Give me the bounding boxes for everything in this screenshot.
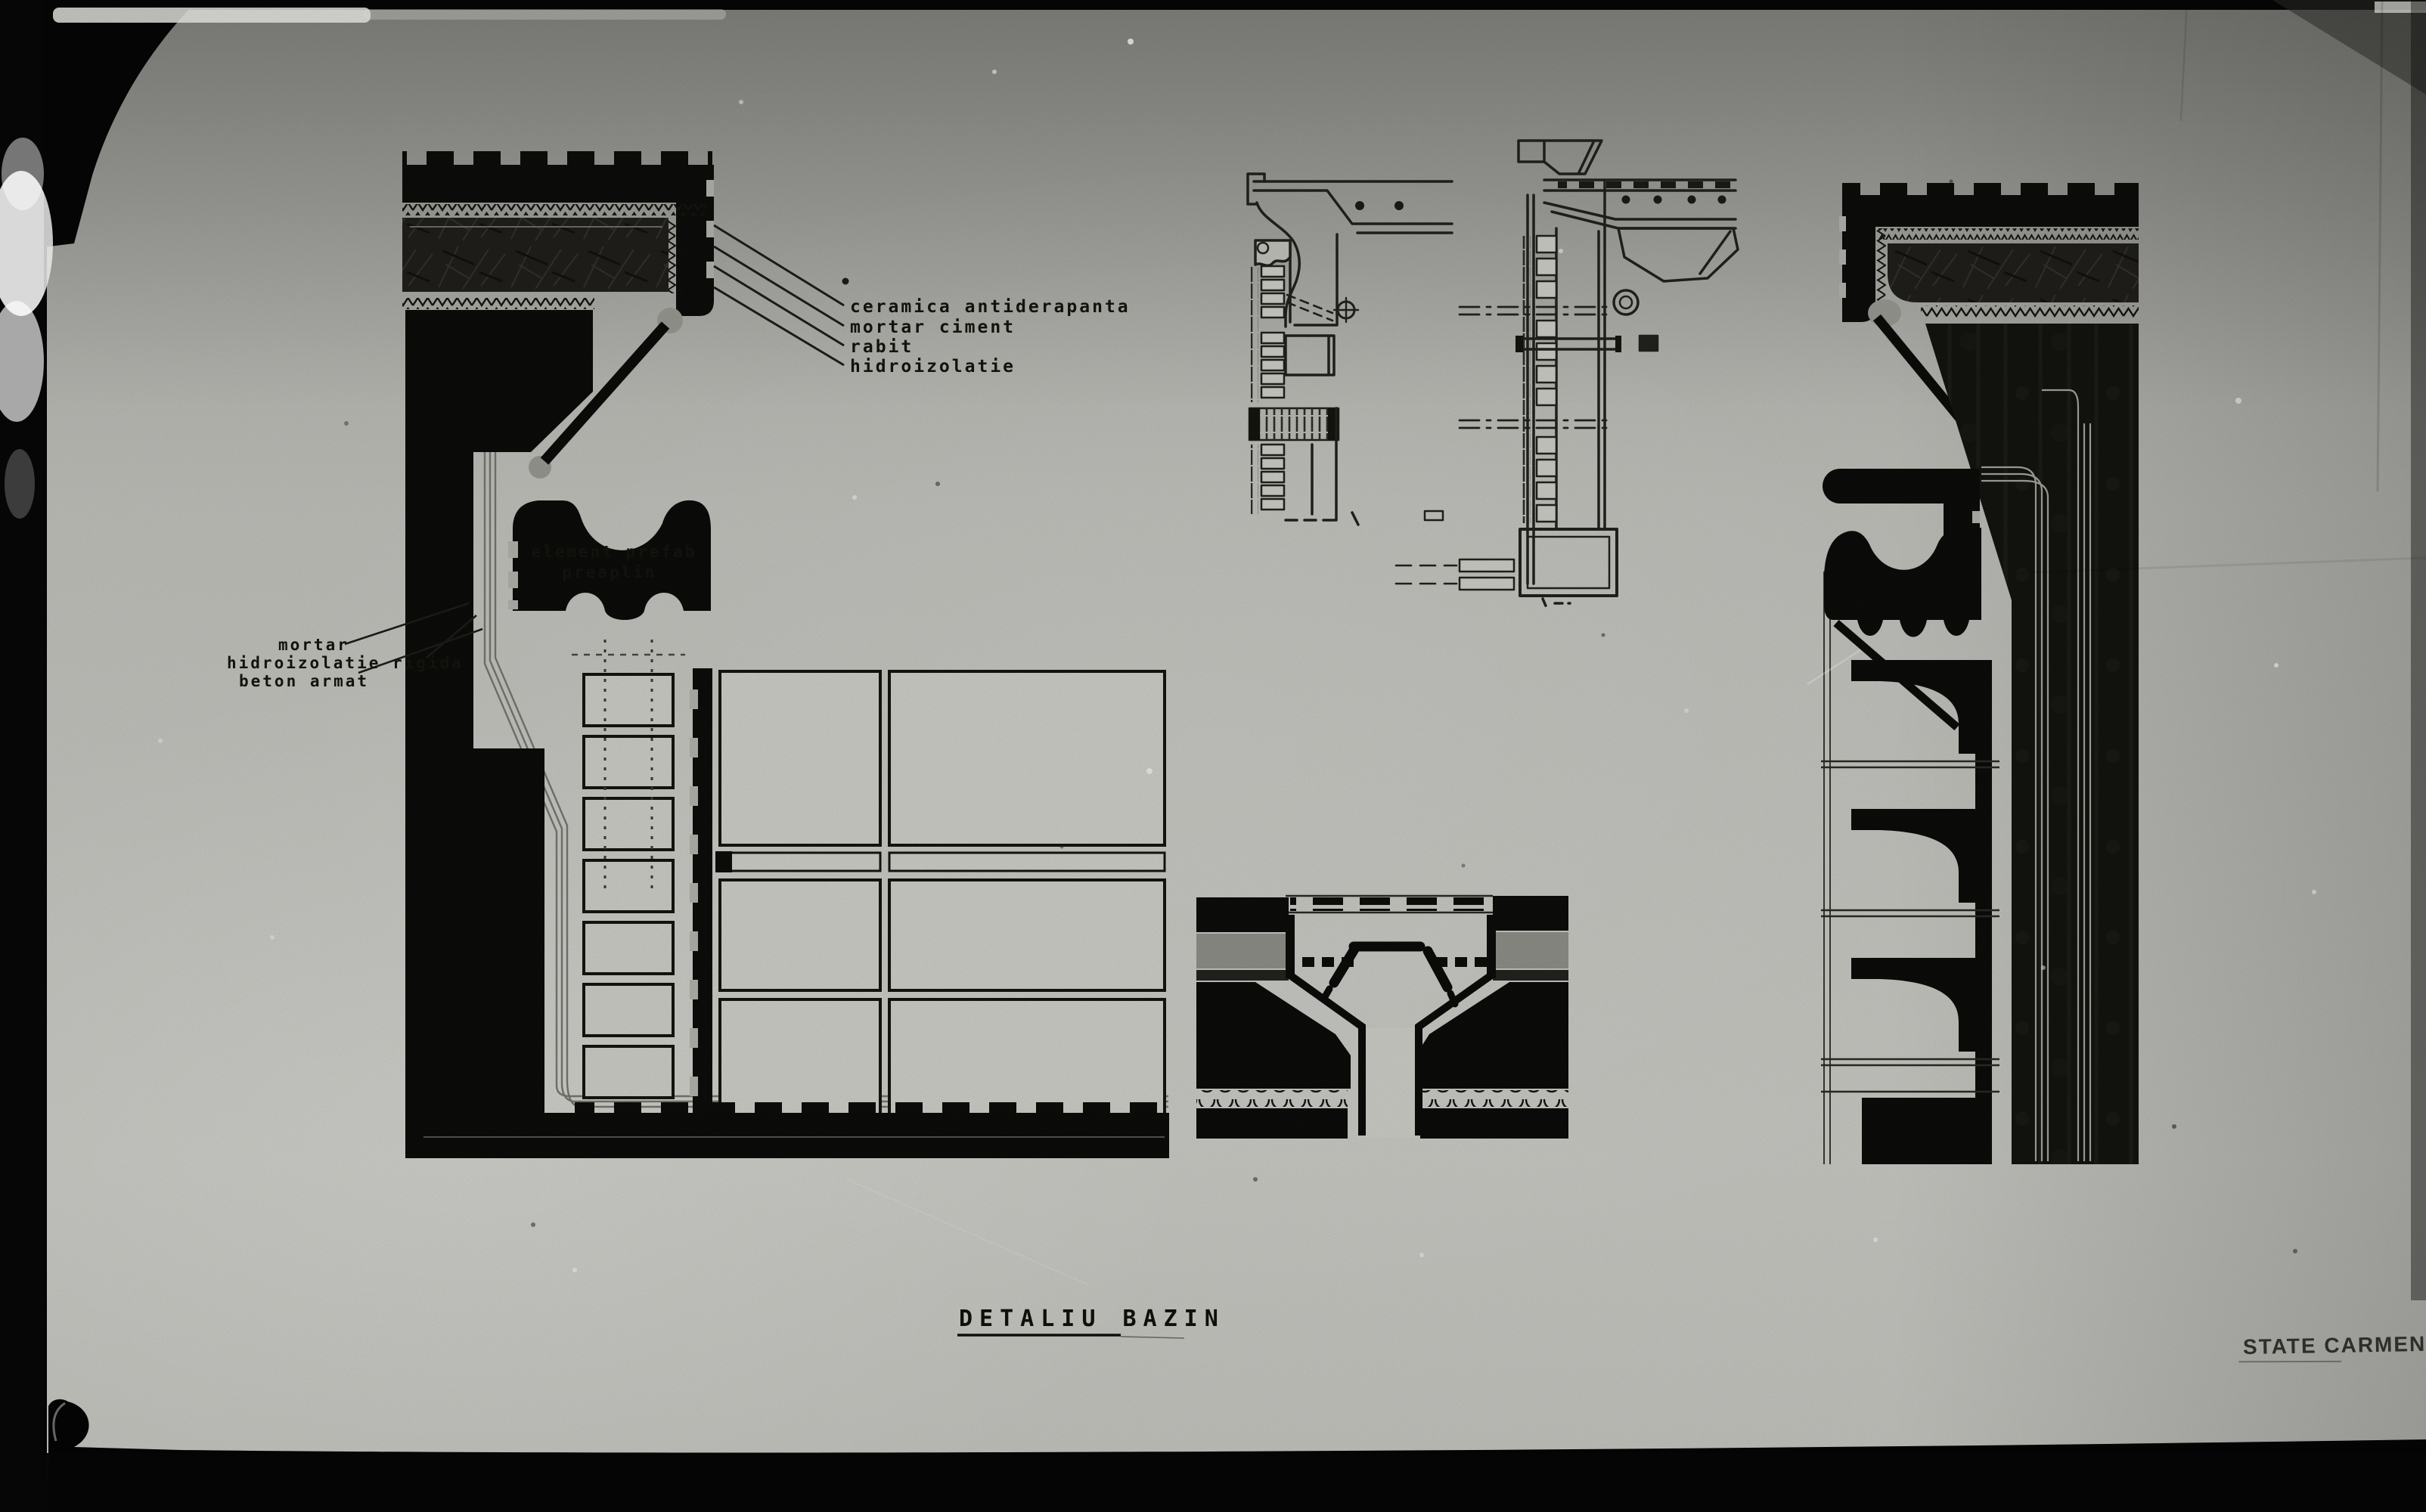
photograph-of-drawing: ceramica antiderapanta mortar ciment rab… bbox=[0, 0, 2426, 1512]
glare-streak-4 bbox=[5, 449, 35, 519]
glare-streak-3 bbox=[2, 138, 44, 210]
film-grain bbox=[44, 0, 2426, 1453]
drawing-canvas: ceramica antiderapanta mortar ciment rab… bbox=[0, 0, 2426, 1512]
